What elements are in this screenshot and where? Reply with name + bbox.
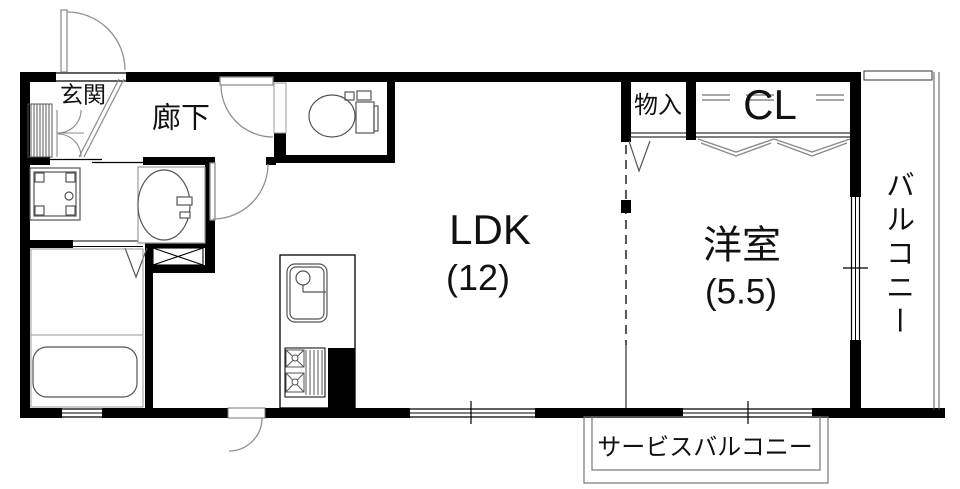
label-service-balcony: サービスバルコニー	[597, 436, 813, 460]
ldk-door	[210, 163, 268, 220]
label-hallway: 廊下	[152, 105, 210, 134]
wash-basin-fixture	[138, 167, 205, 243]
wall-right-upper	[850, 72, 861, 197]
kitchen-wall-block	[328, 348, 355, 408]
shoe-cabinet-doors	[57, 110, 84, 157]
washing-machine-fixture	[30, 168, 80, 220]
kitchen-stove	[285, 348, 325, 397]
label-ldk-size: (12)	[446, 260, 510, 296]
wall-hall-bottom-2	[143, 157, 212, 165]
wall-hall-bottom-3	[266, 157, 276, 165]
entrance-door	[61, 10, 125, 72]
wall-bath-top	[20, 240, 73, 248]
kitchen-sink	[287, 264, 327, 322]
label-closet: CL	[743, 84, 797, 126]
storage-folding-door	[629, 141, 650, 171]
wall-storage-closet-divider	[686, 72, 696, 140]
label-genkan: 玄関	[60, 84, 106, 107]
kitchen-fixture	[280, 255, 355, 408]
label-balcony: バルコニー	[883, 170, 912, 340]
bathtub-fixture	[31, 249, 143, 407]
shoe-cabinet-hatch	[28, 104, 52, 157]
toilet-door	[220, 77, 286, 137]
toilet-fixture	[309, 91, 378, 137]
wall-toilet-bottom	[274, 155, 395, 163]
wall-toilet-right	[387, 72, 395, 163]
floor-plan: 玄関 廊下 LDK (12) 物入 CL 洋室 (5.5) バルコニー サービス…	[0, 0, 960, 489]
label-ldk: LDK	[449, 209, 531, 251]
fixtures	[30, 91, 378, 408]
wall-right-lower	[850, 340, 861, 418]
bathroom-folding-door	[73, 240, 147, 277]
closet-door-chevrons	[698, 139, 850, 156]
wall-hall-bottom-1	[20, 157, 50, 165]
label-bedroom-size: (5.5)	[705, 275, 777, 310]
bottom-door	[228, 408, 265, 451]
label-storage: 物入	[634, 94, 682, 118]
wall-storage-left	[621, 72, 631, 142]
pipe-space-box	[153, 248, 203, 265]
label-bedroom: 洋室	[703, 227, 781, 266]
wall-ps-bottom	[145, 265, 215, 273]
wall-top	[20, 72, 861, 82]
balcony-partition-panel	[864, 71, 932, 80]
washroom-sliding-door	[50, 157, 143, 165]
